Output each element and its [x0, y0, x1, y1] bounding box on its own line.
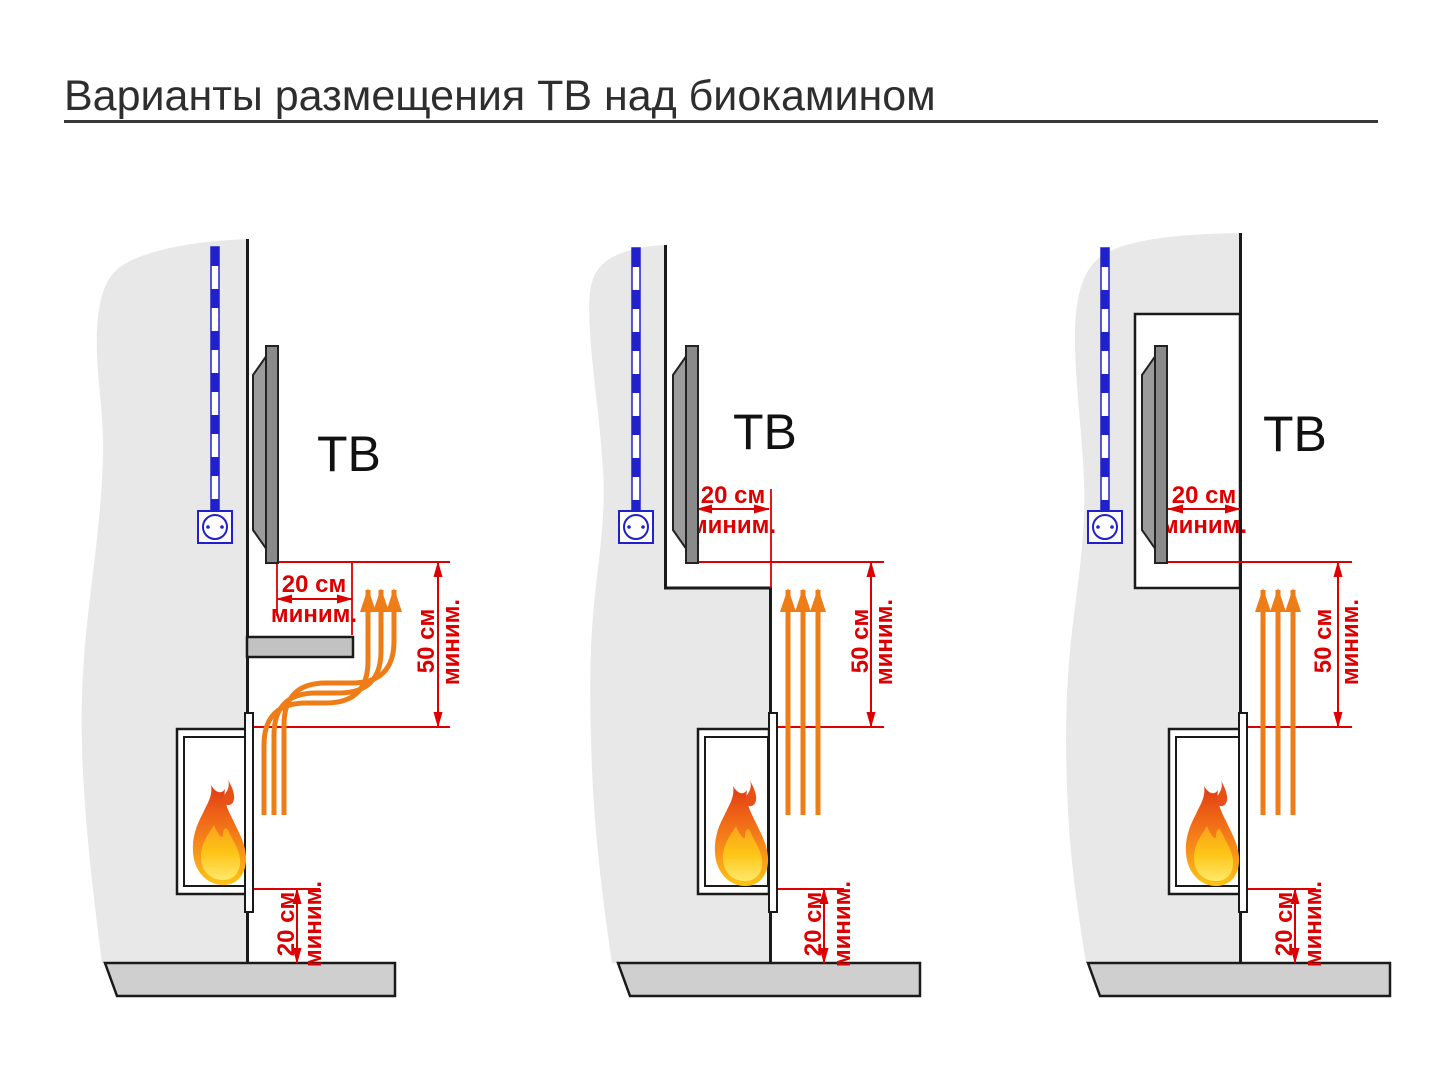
outlet-pin	[641, 525, 645, 529]
tv-side-profile	[266, 346, 278, 563]
tv-side-profile	[1155, 346, 1167, 563]
floor-clearance-min: миним.	[1300, 881, 1327, 967]
tv-back-profile	[253, 355, 267, 550]
fireplace-glass-front	[245, 713, 253, 912]
variant-2-diagram: 20 см миним. 50 см миним. 20 см миним. Т…	[589, 245, 920, 996]
outlet-pin	[220, 525, 224, 529]
placement-diagram: 20 см миним. 50 см миним. 20 см миним. Т…	[0, 0, 1440, 1080]
outlet-pin	[206, 525, 210, 529]
vertical-clearance-value: 50 см	[413, 609, 440, 673]
floor-clearance-min: миним.	[829, 881, 856, 967]
side-clearance-min: миним.	[690, 512, 776, 539]
floor	[1088, 963, 1390, 996]
tv-back-profile	[673, 355, 687, 550]
floor-clearance-min: миним.	[300, 881, 327, 967]
vertical-clearance-value: 50 см	[847, 609, 874, 673]
floor	[618, 963, 920, 996]
variant-3-diagram: 20 см миним. 50 см миним. 20 см миним. Т…	[1066, 233, 1390, 996]
fireplace-glass-front	[1239, 713, 1247, 912]
tv-back-profile	[1142, 355, 1156, 550]
side-clearance-min: миним.	[271, 601, 357, 628]
vertical-clearance-value: 50 см	[1310, 609, 1337, 673]
outlet-pin	[1096, 525, 1100, 529]
variant-1-diagram: 20 см миним. 50 см миним. 20 см миним. Т…	[82, 239, 465, 996]
outlet-pin	[627, 525, 631, 529]
tv-label: ТВ	[1263, 406, 1327, 462]
tv-label: ТВ	[317, 426, 381, 482]
floor-clearance-value: 20 см	[273, 892, 300, 956]
fireplace-glass-front	[769, 713, 777, 912]
vertical-clearance-min: миним.	[1337, 599, 1364, 685]
outlet-pin	[1110, 525, 1114, 529]
tv-side-profile	[686, 346, 698, 563]
side-clearance-min: миним.	[1161, 512, 1247, 539]
side-clearance-value: 20 см	[1172, 482, 1236, 509]
floor	[105, 963, 395, 996]
page: Варианты размещения ТВ над биокамином	[0, 0, 1440, 1080]
floor-clearance-value: 20 см	[1271, 892, 1298, 956]
tv-label: ТВ	[733, 404, 797, 460]
side-clearance-value: 20 см	[701, 482, 765, 509]
vertical-clearance-min: миним.	[871, 599, 898, 685]
floor-clearance-value: 20 см	[800, 892, 827, 956]
side-clearance-value: 20 см	[282, 571, 346, 598]
heat-deflector-shelf	[247, 637, 353, 657]
vertical-clearance-min: миним.	[438, 599, 465, 685]
